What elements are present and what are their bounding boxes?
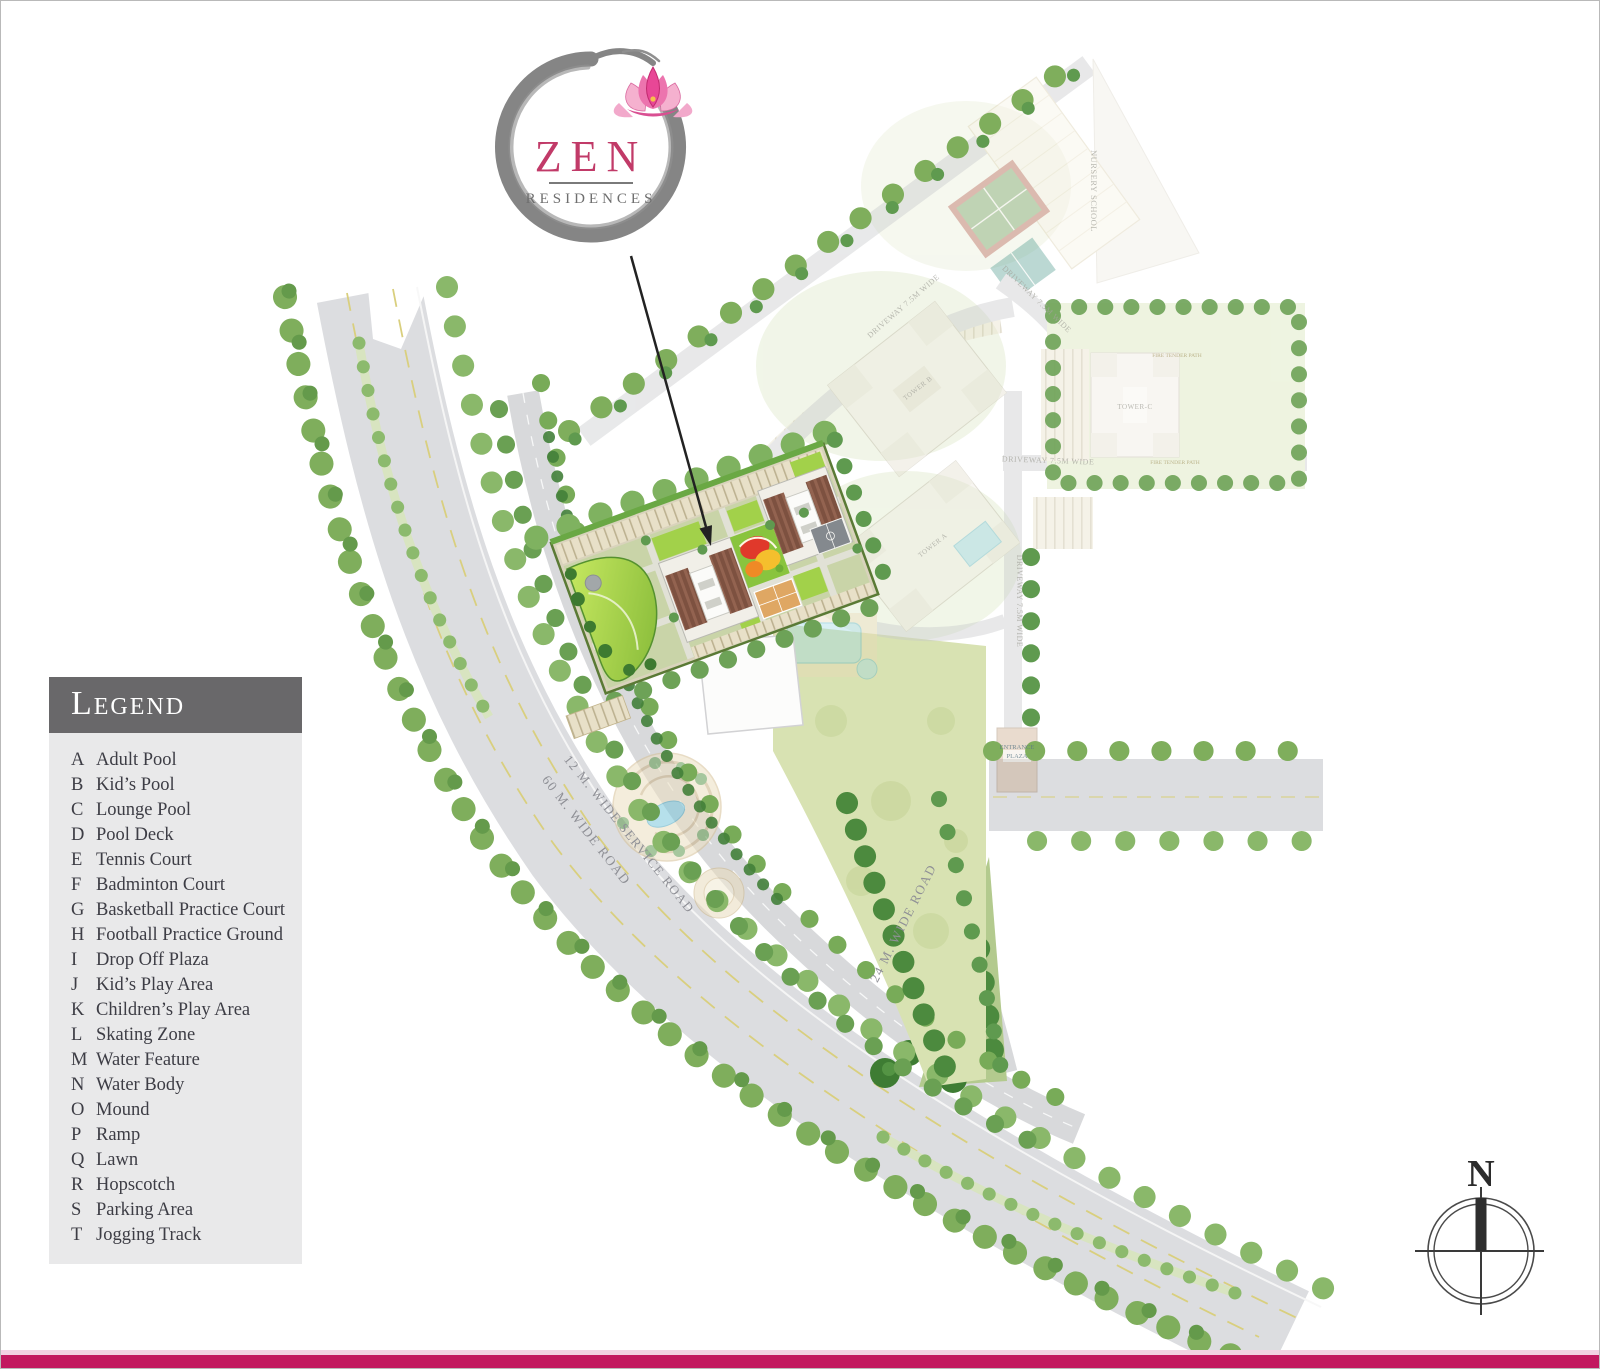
legend-item: LSkating Zone bbox=[71, 1023, 294, 1048]
legend-item: MWater Feature bbox=[71, 1048, 294, 1073]
logo-title: ZEN bbox=[535, 132, 648, 181]
label-entrance-plaza-1: ENTRANCE bbox=[1000, 744, 1035, 751]
legend-item: KChildren’s Play Area bbox=[71, 998, 294, 1023]
label-entrance-plaza-2: PLAZA bbox=[1007, 753, 1028, 760]
zen-residences-logo: ZEN RESIDENCES bbox=[473, 39, 723, 259]
label-driveway-south: DRIVEWAY 7.5M WIDE bbox=[1015, 555, 1024, 647]
label-fire-tender-path-top: FIRE TENDER PATH bbox=[1152, 353, 1202, 359]
legend-item: FBadminton Court bbox=[71, 873, 294, 898]
legend-item: AAdult Pool bbox=[71, 748, 294, 773]
compass: N bbox=[1415, 1153, 1544, 1315]
legend-panel: Legend AAdult Pool BKid’s Pool CLounge P… bbox=[49, 677, 302, 1264]
legend-item: HFootball Practice Ground bbox=[71, 923, 294, 948]
legend-item: IDrop Off Plaza bbox=[71, 948, 294, 973]
legend-item: OMound bbox=[71, 1098, 294, 1123]
lotus-icon bbox=[614, 67, 693, 117]
label-fire-tender-path-bottom: FIRE TENDER PATH bbox=[1150, 460, 1200, 466]
legend-item: CLounge Pool bbox=[71, 798, 294, 823]
legend-item: RHopscotch bbox=[71, 1173, 294, 1198]
east-road bbox=[989, 795, 1323, 797]
legend-item: DPool Deck bbox=[71, 823, 294, 848]
legend-item: BKid’s Pool bbox=[71, 773, 294, 798]
legend-item: NWater Body bbox=[71, 1073, 294, 1098]
legend-item: JKid’s Play Area bbox=[71, 973, 294, 998]
label-tower-c: TOWER-C bbox=[1117, 403, 1152, 411]
compass-needle bbox=[1476, 1198, 1487, 1251]
compass-north-label: N bbox=[1467, 1153, 1494, 1195]
footer-accent-bar bbox=[1, 1355, 1599, 1368]
legend-item: QLawn bbox=[71, 1148, 294, 1173]
label-nursery-school: NURSERY SCHOOL bbox=[1089, 150, 1099, 232]
legend-item: PRamp bbox=[71, 1123, 294, 1148]
logo-subtitle: RESIDENCES bbox=[526, 191, 657, 207]
legend-item: GBasketball Practice Court bbox=[71, 898, 294, 923]
legend-item: ETennis Court bbox=[71, 848, 294, 873]
legend-body: AAdult Pool BKid’s Pool CLounge Pool DPo… bbox=[49, 733, 302, 1264]
site-plan-page: 60 M. WIDE ROAD 12 M. WIDE SERVICE ROAD … bbox=[0, 0, 1600, 1369]
legend-item: SParking Area bbox=[71, 1198, 294, 1223]
legend-item: TJogging Track bbox=[71, 1223, 294, 1248]
legend-title: Legend bbox=[49, 677, 302, 733]
